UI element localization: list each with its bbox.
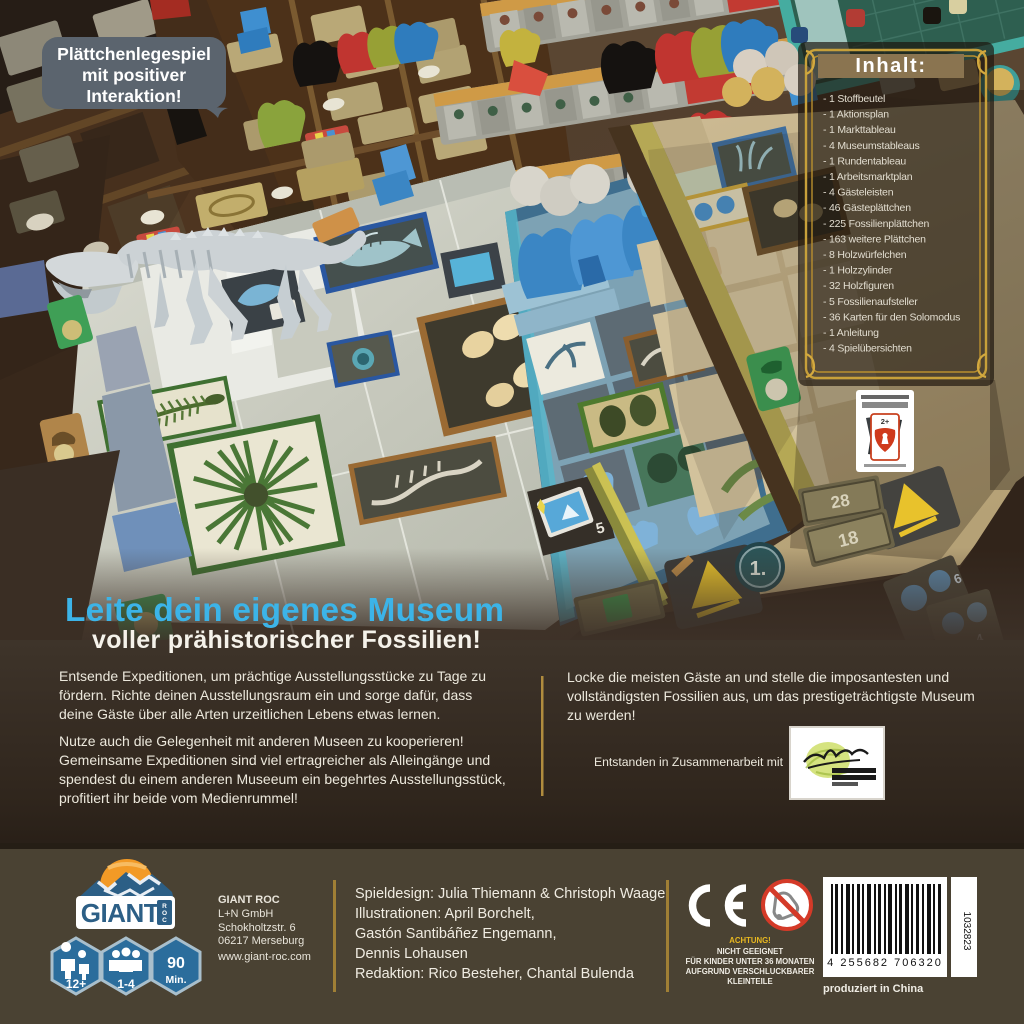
svg-text:28: 28	[829, 490, 851, 512]
svg-text:- 1 Markttableau: - 1 Markttableau	[823, 124, 896, 136]
svg-text:vollständigsten Fossilien aus,: vollständigsten Fossilien aus, um das pr…	[567, 688, 975, 704]
svg-text:Spieldesign: Julia Thiemann &: Spieldesign: Julia Thiemann & Christoph …	[355, 886, 665, 902]
svg-text:- 1 Rundentableau: - 1 Rundentableau	[823, 155, 906, 167]
svg-text:06217 Merseburg: 06217 Merseburg	[218, 935, 304, 947]
svg-text:90: 90	[167, 955, 185, 972]
svg-text:KLEINTEILE: KLEINTEILE	[727, 977, 772, 986]
svg-text:- 4 Museumstableaus: - 4 Museumstableaus	[823, 140, 920, 152]
svg-text:- 1 Holzzylinder: - 1 Holzzylinder	[823, 265, 893, 277]
svg-text:mit positiver: mit positiver	[82, 65, 186, 85]
svg-text:fördern. Richte deinen Ausste: fördern. Richte deinen Ausstellungsraum …	[59, 687, 472, 703]
svg-text:- 1 Arbeitsmarktplan: - 1 Arbeitsmarktplan	[823, 171, 913, 183]
svg-text:voller prähistorischer Fossili: voller prähistorischer Fossilien!	[92, 626, 481, 654]
svg-text:Schokholtzstr. 6: Schokholtzstr. 6	[218, 922, 296, 934]
svg-text:- 36 Karten für den Solomodus: - 36 Karten für den Solomodus	[823, 311, 960, 323]
svg-text:ACHTUNG!: ACHTUNG!	[729, 936, 771, 945]
svg-text:4 255682 706320: 4 255682 706320	[827, 957, 943, 969]
svg-text:GIANT ROC: GIANT ROC	[218, 894, 280, 906]
svg-text:GIANT: GIANT	[81, 898, 160, 928]
svg-text:- 1 Stoffbeutel: - 1 Stoffbeutel	[823, 93, 885, 105]
svg-text:spendest du einem anderen Muse: spendest du einem anderen Museeum ein be…	[59, 771, 506, 787]
svg-text:AUFGRUND VERSCHLUCKBARER: AUFGRUND VERSCHLUCKBARER	[686, 967, 815, 976]
svg-text:Inhalt:: Inhalt:	[855, 55, 926, 77]
svg-text:NICHT GEEIGNET: NICHT GEEIGNET	[717, 947, 784, 956]
svg-text:- 225 Fossilienplättchen: - 225 Fossilienplättchen	[823, 218, 929, 230]
svg-text:L+N GmbH: L+N GmbH	[218, 908, 273, 920]
svg-text:Nutze auch die Gelegenheit mit: Nutze auch die Gelegenheit mit anderen M…	[59, 733, 464, 749]
svg-text:C: C	[162, 917, 167, 924]
svg-text:R: R	[162, 903, 167, 910]
svg-text:Illustrationen: April Borchelt: Illustrationen: April Borchelt,	[355, 906, 535, 922]
svg-text:zu werden!: zu werden!	[567, 707, 635, 723]
svg-text:Dennis Lohausen: Dennis Lohausen	[355, 946, 468, 962]
svg-text:deine Gäste über alle Arten ur: deine Gäste über alle Arten urzeitlichen…	[59, 706, 440, 722]
svg-text:2+: 2+	[881, 417, 890, 426]
svg-text:- 4 Gästeleisten: - 4 Gästeleisten	[823, 187, 894, 199]
svg-text:1-4: 1-4	[117, 977, 135, 991]
svg-text:Plättchenlegespiel: Plättchenlegespiel	[57, 44, 211, 64]
svg-text:Redaktion: Rico Besteher, Chan: Redaktion: Rico Besteher, Chantal Bulend…	[355, 966, 635, 982]
svg-text:- 32 Holzfiguren: - 32 Holzfiguren	[823, 280, 894, 292]
svg-text:Entsende Expeditionen, um präc: Entsende Expeditionen, um prächtige Auss…	[59, 668, 486, 684]
svg-text:Entstanden in Zusammenarbeit m: Entstanden in Zusammenarbeit mit	[594, 755, 784, 769]
svg-text:produziert in China: produziert in China	[823, 983, 924, 995]
svg-text:- 8 Holzwürfelchen: - 8 Holzwürfelchen	[823, 249, 907, 261]
svg-text:Gemeinsame Expeditionen sind v: Gemeinsame Expeditionen sind viel ertrag…	[59, 752, 490, 768]
svg-text:Gastón Santibáñez Engemann,: Gastón Santibáñez Engemann,	[355, 926, 557, 942]
svg-text:Locke die meisten Gäste an und: Locke die meisten Gäste an und stelle di…	[567, 669, 949, 685]
svg-text:FÜR KINDER UNTER 36 MONATEN: FÜR KINDER UNTER 36 MONATEN	[686, 957, 815, 966]
svg-text:12+: 12+	[66, 977, 86, 991]
svg-text:profitiert ihr beide vom Medie: profitiert ihr beide vom Medienrummel!	[59, 790, 298, 806]
svg-text:O: O	[162, 910, 167, 917]
svg-text:Leite dein eigenes Museum: Leite dein eigenes Museum	[65, 592, 504, 629]
svg-text:- 1 Aktionsplan: - 1 Aktionsplan	[823, 109, 889, 121]
svg-text:1032823: 1032823	[961, 912, 972, 951]
svg-text:Interaktion!: Interaktion!	[86, 86, 181, 106]
svg-text:- 4 Spielübersichten: - 4 Spielübersichten	[823, 343, 912, 355]
svg-text:- 163 weitere Plättchen: - 163 weitere Plättchen	[823, 233, 926, 245]
svg-text:Min.: Min.	[166, 974, 187, 986]
svg-text:- 5 Fossilienaufsteller: - 5 Fossilienaufsteller	[823, 296, 918, 308]
svg-text:www.giant-roc.com: www.giant-roc.com	[217, 951, 311, 963]
svg-text:- 46 Gästeplättchen: - 46 Gästeplättchen	[823, 202, 911, 214]
svg-text:- 1 Anleitung: - 1 Anleitung	[823, 327, 879, 339]
